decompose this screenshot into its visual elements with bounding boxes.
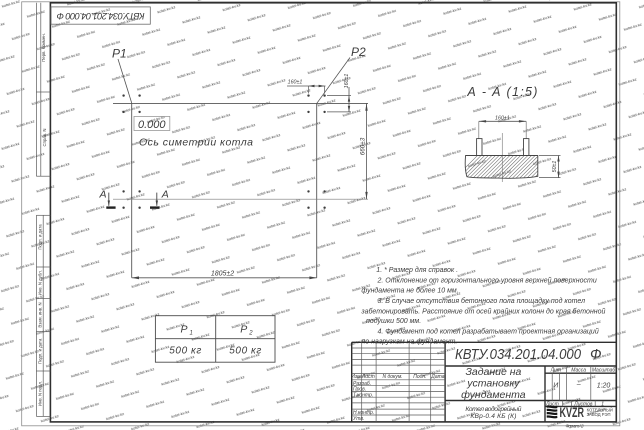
svg-text:1: 1 [601, 401, 604, 407]
svg-text:Изм.Лист: Изм.Лист [351, 374, 375, 380]
svg-text:Формат А3: Формат А3 [566, 423, 584, 428]
svg-text:А - А (1:5): А - А (1:5) [466, 85, 537, 99]
svg-text:1. * Размер для справок .: 1. * Размер для справок . [376, 266, 458, 274]
svg-text:Взам. инв. N: Взам. инв. N [38, 302, 43, 327]
svg-text:3. В случае отсутствия бетонно: 3. В случае отсутствия бетонного пола пл… [378, 297, 586, 305]
svg-text:1: 1 [190, 331, 193, 337]
svg-text:Ф: Ф [590, 347, 602, 363]
svg-text:А: А [99, 188, 107, 200]
svg-text:KVZR: KVZR [560, 405, 585, 420]
svg-text:Лит: Лит [550, 367, 561, 373]
svg-text:фундамента: фундамента [461, 389, 526, 401]
svg-text:–: – [576, 382, 581, 389]
svg-text:Подп. и дата: Подп. и дата [38, 338, 43, 364]
svg-text:N докум.: N докум. [382, 374, 402, 380]
svg-text:фундамента не более 10 мм.: фундамента не более 10 мм. [361, 287, 458, 295]
svg-text:забетонировать. Расстояние от: забетонировать. Расстояние от осей крайн… [360, 308, 605, 316]
svg-text:1805±2: 1805±2 [211, 271, 234, 278]
svg-text:500 кг: 500 кг [169, 346, 201, 357]
svg-text:Масса: Масса [571, 367, 586, 373]
svg-text:Подп. и дата: Подп. и дата [38, 224, 43, 250]
svg-text:160±1: 160±1 [344, 74, 350, 89]
svg-text:160±1: 160±1 [495, 115, 510, 121]
svg-text:50±1: 50±1 [552, 161, 558, 173]
svg-text:Масштаб: Масштаб [592, 367, 616, 373]
svg-text:Задание на: Задание на [465, 366, 521, 378]
svg-text:Дата: Дата [430, 374, 444, 380]
svg-text:Т.контр.: Т.контр. [353, 392, 373, 398]
svg-text:4. Фундамент под котел разраба: 4. Фундамент под котел разрабатывает про… [378, 328, 599, 336]
svg-text:0.000: 0.000 [138, 119, 166, 131]
svg-text:2: 2 [248, 331, 253, 337]
svg-text:Р2: Р2 [351, 45, 366, 59]
svg-text:160±1: 160±1 [288, 79, 303, 85]
svg-text:Перв. примен.: Перв. примен. [41, 33, 46, 62]
svg-text:А: А [161, 188, 169, 200]
svg-text:Ось симетрии котла: Ось симетрии котла [139, 137, 253, 149]
svg-text:660±3: 660±3 [359, 137, 366, 155]
svg-text:КВр-0.4 КБ (К): КВр-0.4 КБ (К) [470, 413, 516, 420]
svg-text:Котел водогрейный: Котел водогрейный [465, 405, 521, 413]
svg-text:Р: Р [181, 324, 188, 336]
svg-text:ЗАВОД РЭП: ЗАВОД РЭП [587, 412, 611, 417]
svg-text:2. Отклонение от горизонтально: 2. Отклонение от горизонтального уровня … [377, 276, 597, 284]
svg-text:Р1: Р1 [112, 47, 127, 61]
svg-text:Подп.: Подп. [413, 374, 426, 380]
svg-text:Р: Р [240, 324, 247, 336]
svg-text:Справ. N: Справ. N [42, 129, 47, 147]
svg-text:Инв. N подл.: Инв. N подл. [38, 381, 43, 406]
svg-text:1:20: 1:20 [597, 383, 611, 390]
svg-text:подушки 500 мм.: подушки 500 мм. [366, 317, 421, 325]
svg-text:установку: установку [466, 378, 520, 390]
svg-text:Утв.: Утв. [353, 416, 364, 422]
svg-text:КВТУ.034.201.04.000 Ф: КВТУ.034.201.04.000 Ф [56, 11, 145, 21]
svg-text:500 кг: 500 кг [229, 346, 261, 357]
svg-text:Инв. N дубл.: Инв. N дубл. [38, 270, 43, 295]
svg-text:КВТУ.034.201.04.000: КВТУ.034.201.04.000 [455, 347, 581, 363]
